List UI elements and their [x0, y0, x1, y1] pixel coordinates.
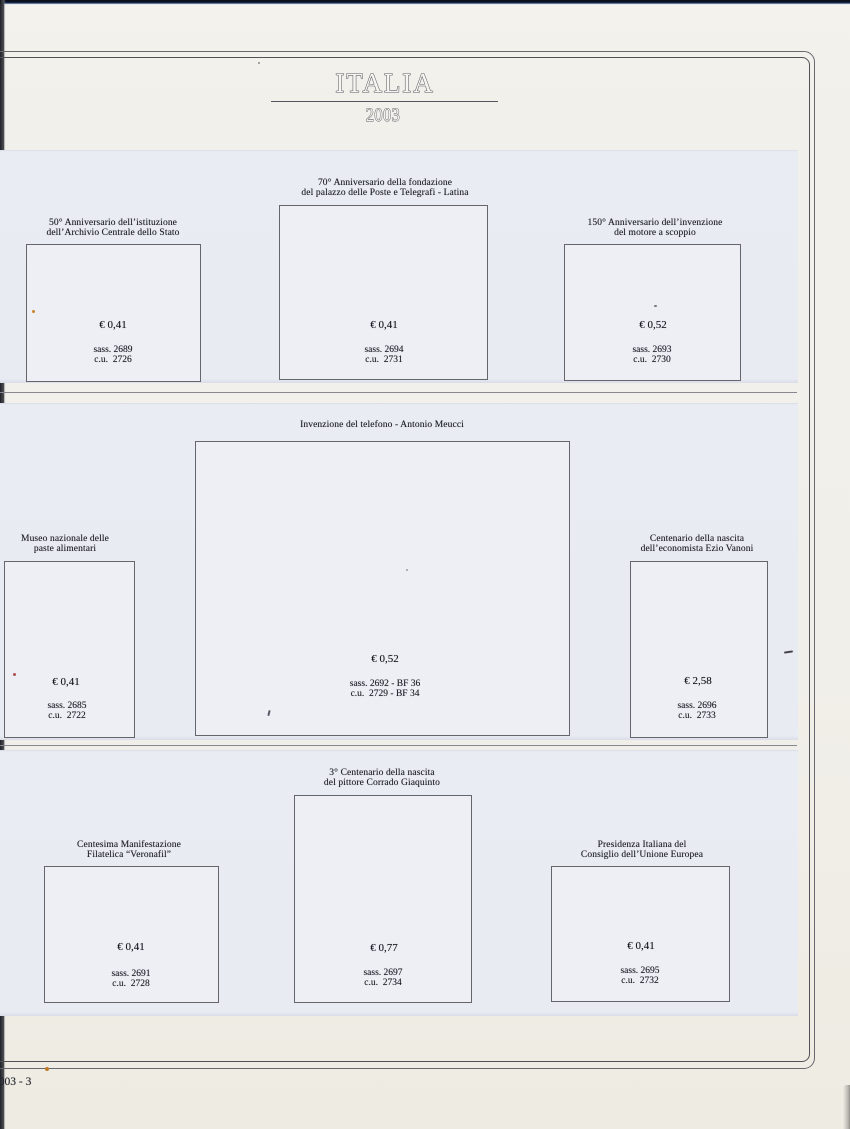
svg-text:ITALIA: ITALIA — [335, 68, 434, 98]
svg-text:2003: 2003 — [366, 104, 400, 125]
